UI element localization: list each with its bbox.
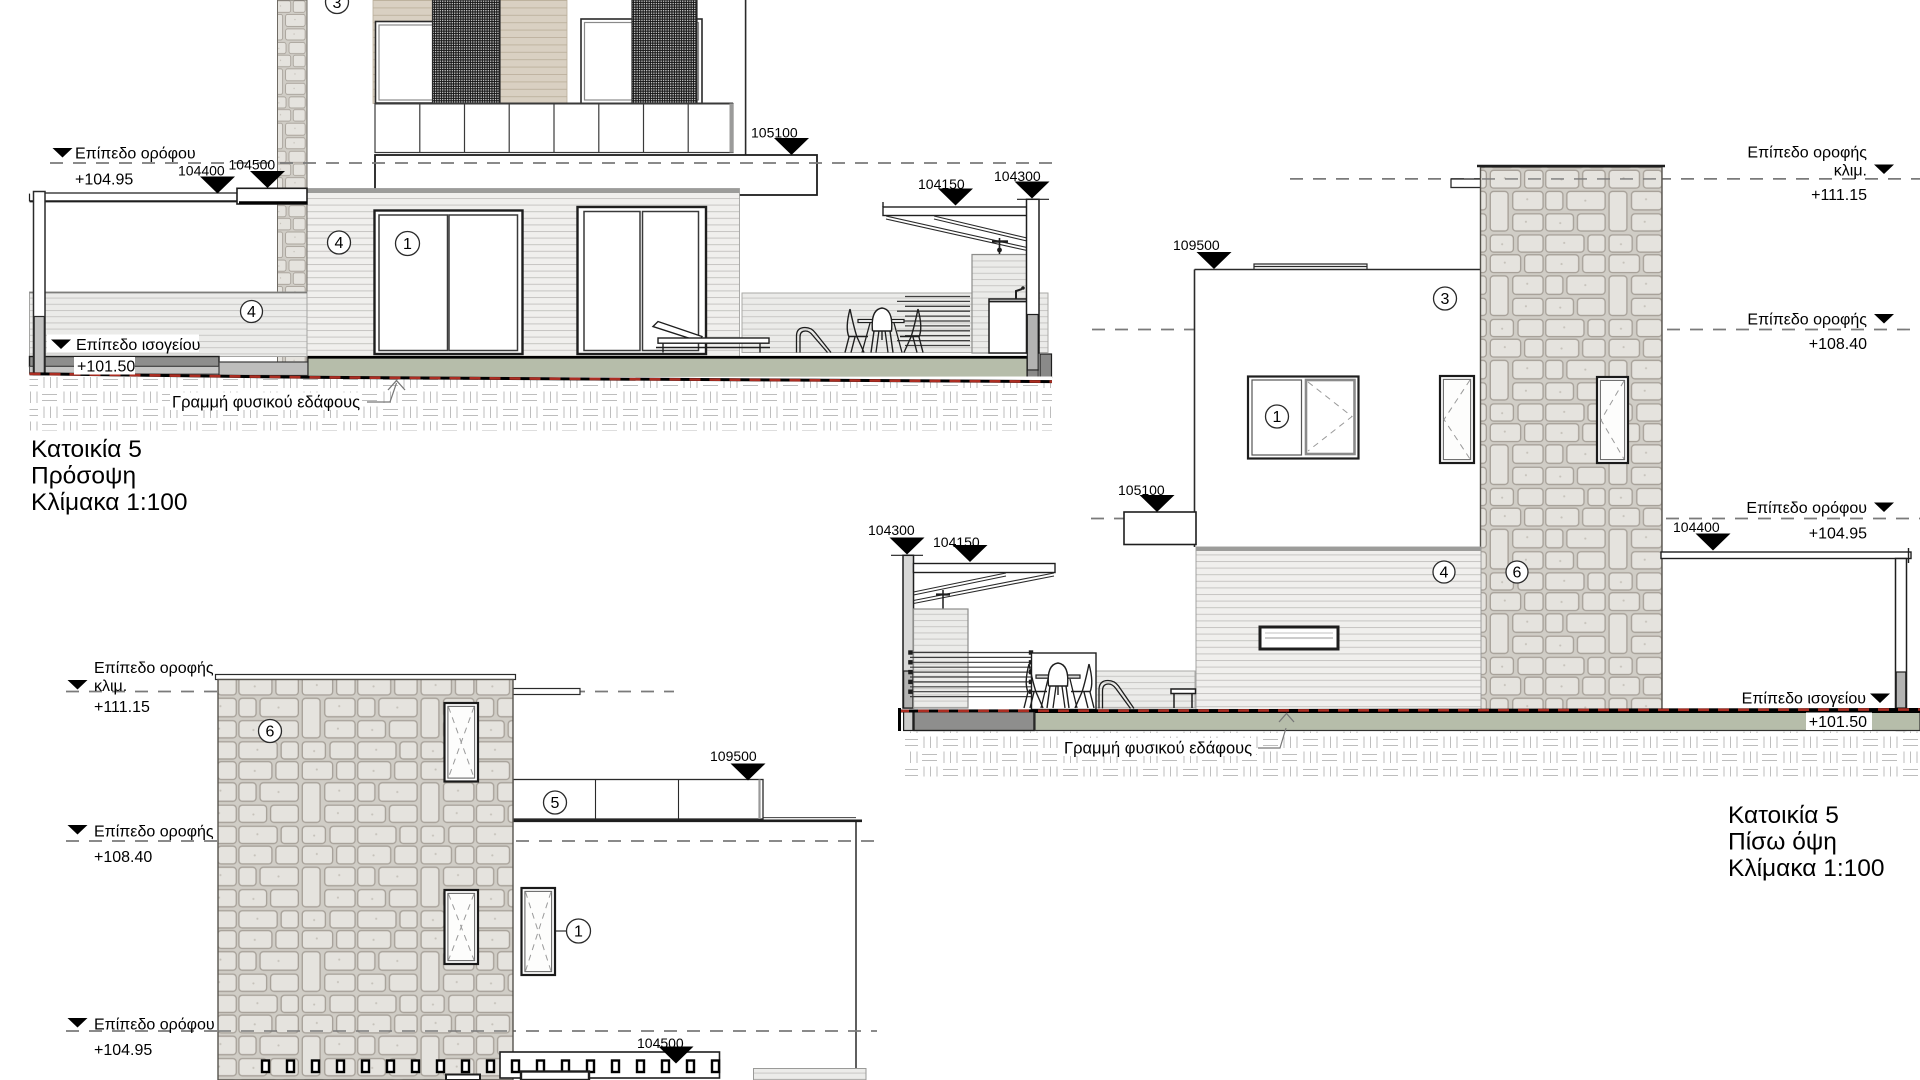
svg-text:Πίσω όψη: Πίσω όψη	[1728, 829, 1837, 856]
svg-text:Επίπεδο ισογείου: Επίπεδο ισογείου	[1742, 691, 1866, 708]
svg-text:+104.95: +104.95	[94, 1042, 152, 1059]
svg-text:Κλίμακα 1:100: Κλίμακα 1:100	[1728, 855, 1885, 882]
svg-text:104400: 104400	[178, 163, 225, 179]
svg-text:+108.40: +108.40	[94, 849, 152, 866]
svg-text:3: 3	[1441, 291, 1450, 308]
svg-text:Επίπεδο ορόφου: Επίπεδο ορόφου	[94, 1017, 215, 1034]
svg-text:κλιμ.: κλιμ.	[94, 678, 127, 695]
svg-text:+104.95: +104.95	[1809, 526, 1867, 543]
svg-text:6: 6	[1513, 565, 1522, 582]
svg-text:3: 3	[333, 0, 342, 12]
svg-text:Επίπεδο ισογείου: Επίπεδο ισογείου	[76, 337, 200, 354]
svg-text:104400: 104400	[1673, 519, 1720, 535]
svg-text:Γραμμή φυσικού εδάφους: Γραμμή φυσικού εδάφους	[1064, 740, 1252, 758]
svg-text:5: 5	[551, 795, 560, 812]
svg-text:Κατοικία 5: Κατοικία 5	[1728, 802, 1839, 829]
svg-text:+111.15: +111.15	[1811, 187, 1867, 204]
svg-text:Επίπεδο ορόφου: Επίπεδο ορόφου	[1746, 500, 1867, 517]
svg-text:+104.95: +104.95	[75, 172, 133, 189]
svg-text:Κλίμακα 1:100: Κλίμακα 1:100	[31, 489, 188, 516]
svg-text:+111.15: +111.15	[94, 699, 150, 716]
svg-text:Επίπεδο οροφής: Επίπεδο οροφής	[1747, 312, 1867, 329]
svg-text:Κατοικία 5: Κατοικία 5	[31, 436, 142, 463]
svg-text:4: 4	[1440, 565, 1449, 582]
svg-text:104500: 104500	[229, 157, 276, 173]
svg-text:+101.50: +101.50	[77, 359, 135, 376]
svg-text:109500: 109500	[1173, 237, 1220, 253]
svg-text:1: 1	[403, 236, 412, 253]
svg-text:+101.50: +101.50	[1809, 714, 1867, 731]
svg-text:Επίπεδο οροφής: Επίπεδο οροφής	[1747, 145, 1867, 162]
svg-text:1: 1	[574, 924, 583, 941]
svg-text:Επίπεδο οροφής: Επίπεδο οροφής	[94, 660, 214, 677]
svg-text:109500: 109500	[710, 748, 757, 764]
svg-text:κλιμ.: κλιμ.	[1834, 163, 1867, 180]
svg-text:Επίπεδο ορόφου: Επίπεδο ορόφου	[75, 146, 196, 163]
svg-text:Γραμμή φυσικού εδάφους: Γραμμή φυσικού εδάφους	[172, 394, 360, 412]
svg-text:4: 4	[247, 304, 256, 321]
svg-text:4: 4	[335, 235, 344, 252]
svg-text:Πρόσοψη: Πρόσοψη	[31, 463, 136, 490]
svg-text:6: 6	[266, 724, 275, 741]
svg-text:+108.40: +108.40	[1809, 336, 1867, 353]
svg-text:Επίπεδο οροφής: Επίπεδο οροφής	[94, 824, 214, 841]
svg-text:1: 1	[1273, 409, 1282, 426]
svg-text:104300: 104300	[868, 522, 915, 538]
